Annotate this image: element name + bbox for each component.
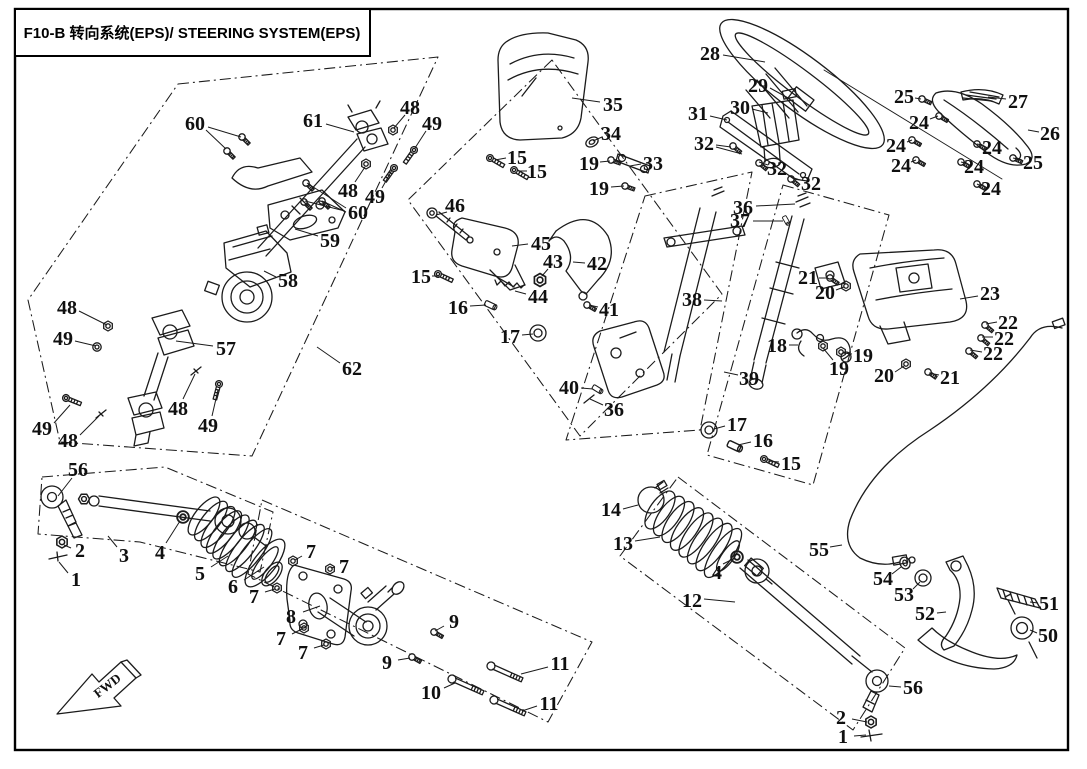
part-label-30: 30 [730, 97, 750, 119]
part-label-24: 24 [891, 155, 911, 177]
part-label-16: 16 [753, 430, 773, 452]
leader-line-60 [208, 127, 241, 137]
part-label-48: 48 [58, 430, 78, 452]
leader-line-49 [54, 405, 70, 423]
part-label-37: 37 [730, 210, 750, 232]
part-label-49: 49 [422, 113, 442, 135]
washer-49 [93, 343, 101, 351]
leader-line-26 [1028, 130, 1039, 132]
part-label-11: 11 [551, 653, 570, 675]
grommet-17 [701, 422, 717, 438]
leader-line-16 [470, 305, 486, 306]
part-label-8: 8 [286, 606, 296, 628]
leader-line-52 [937, 612, 946, 613]
part-label-9: 9 [449, 611, 459, 633]
part-label-57: 57 [216, 338, 236, 360]
part-label-60: 60 [185, 113, 205, 135]
part-label-34: 34 [601, 123, 621, 145]
part-label-19: 19 [829, 358, 849, 380]
leader-line-36 [590, 399, 603, 405]
part-label-5: 5 [195, 563, 205, 585]
part-label-49: 49 [198, 415, 218, 437]
leader-line-30 [752, 109, 768, 113]
upper-joint-61 [348, 101, 388, 151]
leader-line-2 [852, 719, 867, 722]
leader-line-9 [435, 626, 444, 631]
part-label-38: 38 [682, 289, 702, 311]
part-label-17: 17 [727, 414, 747, 436]
leader-line-4 [166, 521, 180, 543]
screw-24 [908, 136, 923, 148]
screw-32 [728, 141, 742, 154]
bellows-13 [639, 486, 748, 582]
part-label-58: 58 [278, 270, 298, 292]
outer-tie-rod-3 [79, 494, 267, 546]
leader-line-45 [512, 244, 528, 246]
part-label-24: 24 [981, 178, 1001, 200]
part-label-23: 23 [980, 283, 1000, 305]
bolt-10 [447, 674, 485, 697]
leader-line-48 [79, 311, 107, 325]
part-label-53: 53 [894, 584, 914, 606]
part-label-22: 22 [983, 343, 1003, 365]
leader-line-13 [635, 537, 660, 541]
nut-20 [842, 281, 851, 291]
part-label-55: 55 [809, 539, 829, 561]
leader-line-28 [723, 55, 765, 62]
part-label-20: 20 [874, 365, 894, 387]
throttle-cable-55 [848, 318, 1065, 565]
exploded-view-diagram: F10-B 转向系统(EPS)/ STEERING SYSTEM(EPS) [0, 0, 1087, 769]
leader-line-35 [572, 98, 600, 102]
bolt-49 [62, 394, 83, 408]
part-label-49: 49 [365, 186, 385, 208]
part-label-21: 21 [940, 367, 960, 389]
sleeve-16 [727, 440, 744, 452]
part-label-50: 50 [1038, 625, 1058, 647]
part-label-11: 11 [540, 693, 559, 715]
bolt-15 [485, 153, 505, 169]
leader-line-33 [630, 164, 641, 166]
part-label-7: 7 [298, 642, 308, 664]
grommet-17 [530, 325, 546, 341]
part-label-24: 24 [909, 112, 929, 134]
part-callouts: 2829303132323225242424272624242524353419… [32, 43, 1060, 748]
nut-7 [273, 583, 282, 593]
part-label-32: 32 [767, 158, 787, 180]
part-label-1: 1 [71, 569, 81, 591]
leader-line-49 [75, 341, 96, 346]
pin-37 [782, 215, 791, 226]
part-label-32: 32 [694, 133, 714, 155]
leader-line-38 [704, 300, 722, 301]
lower-joint-57 [128, 310, 194, 446]
part-label-28: 28 [700, 43, 720, 65]
leader-line-48 [80, 416, 99, 435]
leader-line-44 [515, 291, 526, 294]
part-label-46: 46 [445, 195, 465, 217]
part-label-24: 24 [982, 137, 1002, 159]
leader-line-20 [895, 366, 904, 372]
part-label-59: 59 [320, 230, 340, 252]
leader-line-23 [960, 296, 978, 299]
leader-line-36 [756, 204, 795, 206]
part-label-35: 35 [603, 94, 623, 116]
part-label-18: 18 [767, 335, 787, 357]
bolt-60 [317, 196, 331, 210]
part-label-48: 48 [57, 297, 77, 319]
cotter-pin-1 [49, 552, 67, 561]
part-label-19: 19 [579, 153, 599, 175]
leader-line-48 [183, 374, 195, 399]
part-label-62: 62 [342, 358, 362, 380]
nut-7 [322, 639, 331, 649]
bolt-49 [212, 380, 224, 400]
part-label-4: 4 [712, 562, 722, 584]
part-label-52: 52 [915, 603, 935, 625]
steering-wheel [705, 2, 899, 167]
leader-line-25 [915, 98, 921, 99]
page-title: F10-B 转向系统(EPS)/ STEERING SYSTEM(EPS) [24, 24, 361, 42]
part-label-48: 48 [338, 180, 358, 202]
leader-line-54 [892, 567, 901, 574]
leader-line-17 [522, 334, 533, 335]
leader-line-1 [59, 562, 68, 573]
part-label-40: 40 [559, 377, 579, 399]
part-label-33: 33 [643, 153, 663, 175]
part-label-19: 19 [589, 178, 609, 200]
nut-20 [902, 359, 911, 369]
part-label-48: 48 [400, 97, 420, 119]
bolt-11 [489, 695, 527, 718]
part-label-4: 4 [155, 542, 165, 564]
part-label-15: 15 [527, 161, 547, 183]
part-label-44: 44 [528, 286, 548, 308]
nut-7 [289, 556, 298, 566]
leader-line-11 [521, 667, 548, 674]
leader-line-12 [704, 599, 735, 602]
leader-line-31 [710, 116, 727, 120]
screw-25 [918, 95, 933, 106]
part-label-32: 32 [801, 173, 821, 195]
part-label-19: 19 [853, 345, 873, 367]
leader-line-61 [326, 124, 354, 132]
part-label-14: 14 [601, 499, 621, 521]
nut-2 [866, 716, 876, 728]
leader-line-57 [176, 341, 213, 346]
parts-catalog-page: F10-B 转向系统(EPS)/ STEERING SYSTEM(EPS) [0, 0, 1087, 769]
pin-48 [191, 367, 201, 375]
part-label-24: 24 [964, 156, 984, 178]
nut-48 [362, 159, 371, 169]
leader-line-8 [303, 606, 320, 612]
part-label-10: 10 [421, 682, 441, 704]
part-label-13: 13 [613, 533, 633, 555]
bolt-15 [433, 269, 453, 283]
leader-line-32 [716, 145, 731, 147]
screw-32 [786, 174, 800, 187]
leader-line-56 [889, 686, 901, 687]
part-label-36: 36 [604, 399, 624, 421]
part-label-51: 51 [1039, 593, 1059, 615]
bolt-49 [402, 145, 419, 165]
leader-line-58 [264, 271, 276, 277]
leader-line-10 [444, 683, 455, 688]
part-label-43: 43 [543, 251, 563, 273]
part-label-15: 15 [411, 266, 431, 288]
part-label-31: 31 [688, 103, 708, 125]
part-label-7: 7 [306, 541, 316, 563]
screw-22 [964, 346, 978, 359]
bolt-60 [222, 146, 236, 160]
nut-43 [534, 274, 545, 287]
screw-24 [935, 112, 950, 124]
part-label-49: 49 [32, 418, 52, 440]
bolt-11 [486, 661, 524, 684]
part-label-15: 15 [781, 453, 801, 475]
pin-40 [592, 384, 604, 394]
leader-line-11 [522, 706, 537, 711]
part-label-15: 15 [507, 147, 527, 169]
leader-line-39 [724, 372, 738, 375]
wheel-trim [961, 90, 1003, 104]
part-label-39: 39 [739, 368, 759, 390]
part-label-41: 41 [599, 299, 619, 321]
boot-clamp-14 [638, 480, 668, 513]
part-label-24: 24 [886, 135, 906, 157]
screw-19 [621, 182, 636, 193]
leader-line-3 [108, 536, 117, 547]
part-label-26: 26 [1040, 123, 1060, 145]
part-label-3: 3 [119, 545, 129, 567]
part-label-42: 42 [587, 253, 607, 275]
part-label-9: 9 [382, 652, 392, 674]
part-label-49: 49 [53, 328, 73, 350]
leader-line-62 [317, 347, 340, 363]
leader-line-16 [738, 442, 751, 445]
inner-ball-joint [745, 559, 772, 584]
part-label-25: 25 [894, 86, 914, 108]
part-label-56: 56 [68, 459, 88, 481]
nut-7 [326, 564, 335, 574]
intermediate-shaft-37 [748, 193, 810, 391]
bolt-60 [301, 178, 315, 192]
leader-line-42 [573, 262, 585, 263]
part-label-25: 25 [1023, 152, 1043, 174]
leader-line-1 [854, 735, 866, 736]
fwd-label: FWD [91, 670, 124, 701]
leader-line-14 [623, 505, 638, 509]
part-label-1: 1 [838, 726, 848, 748]
part-label-6: 6 [228, 576, 238, 598]
part-label-2: 2 [75, 540, 85, 562]
part-label-17: 17 [500, 326, 520, 348]
part-label-16: 16 [448, 297, 468, 319]
column-cover [498, 33, 588, 140]
part-label-7: 7 [249, 586, 259, 608]
washer-34 [584, 135, 600, 149]
leader-line-55 [830, 545, 842, 547]
part-label-54: 54 [873, 568, 893, 590]
leader-line-9 [398, 658, 410, 660]
part-label-48: 48 [168, 398, 188, 420]
screw-24 [912, 156, 927, 168]
part-label-61: 61 [303, 110, 323, 132]
leader-line-59 [295, 229, 318, 236]
part-label-27: 27 [1008, 91, 1028, 113]
part-label-56: 56 [903, 677, 923, 699]
part-label-7: 7 [276, 628, 286, 650]
part-label-29: 29 [748, 75, 768, 97]
part-label-7: 7 [339, 556, 349, 578]
part-label-12: 12 [682, 590, 702, 612]
nut-48 [389, 125, 398, 135]
nut-48 [104, 321, 113, 331]
nut-19 [819, 341, 828, 351]
steering-column-38 [584, 187, 745, 403]
steering-gearbox [318, 579, 406, 645]
pedal-pad-51 [997, 588, 1040, 608]
leader-line-15 [495, 158, 506, 160]
bolt-60 [237, 132, 251, 146]
leader-line-60 [206, 130, 226, 149]
part-label-20: 20 [815, 282, 835, 304]
part-label-60: 60 [348, 202, 368, 224]
leader-line-50 [1030, 630, 1037, 633]
ring-53 [915, 570, 931, 586]
tie-rod-end-56 [41, 486, 82, 538]
column-housing-23 [815, 250, 967, 344]
